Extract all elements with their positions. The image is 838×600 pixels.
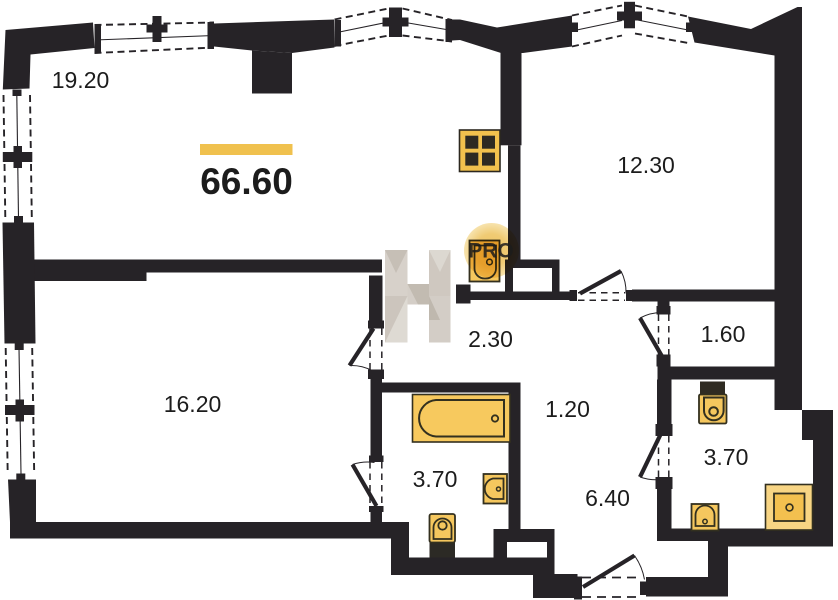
svg-text:12.30: 12.30 (617, 152, 675, 178)
svg-text:6.40: 6.40 (585, 485, 630, 511)
svg-text:1.20: 1.20 (545, 396, 590, 422)
svg-text:3.70: 3.70 (704, 444, 749, 470)
svg-text:66.60: 66.60 (200, 161, 293, 202)
svg-text:19.20: 19.20 (52, 67, 110, 93)
svg-text:16.20: 16.20 (164, 391, 222, 417)
svg-text:PRO: PRO (468, 240, 514, 263)
svg-text:1.60: 1.60 (701, 321, 746, 347)
svg-text:3.70: 3.70 (413, 466, 458, 492)
svg-text:2.30: 2.30 (468, 326, 513, 352)
